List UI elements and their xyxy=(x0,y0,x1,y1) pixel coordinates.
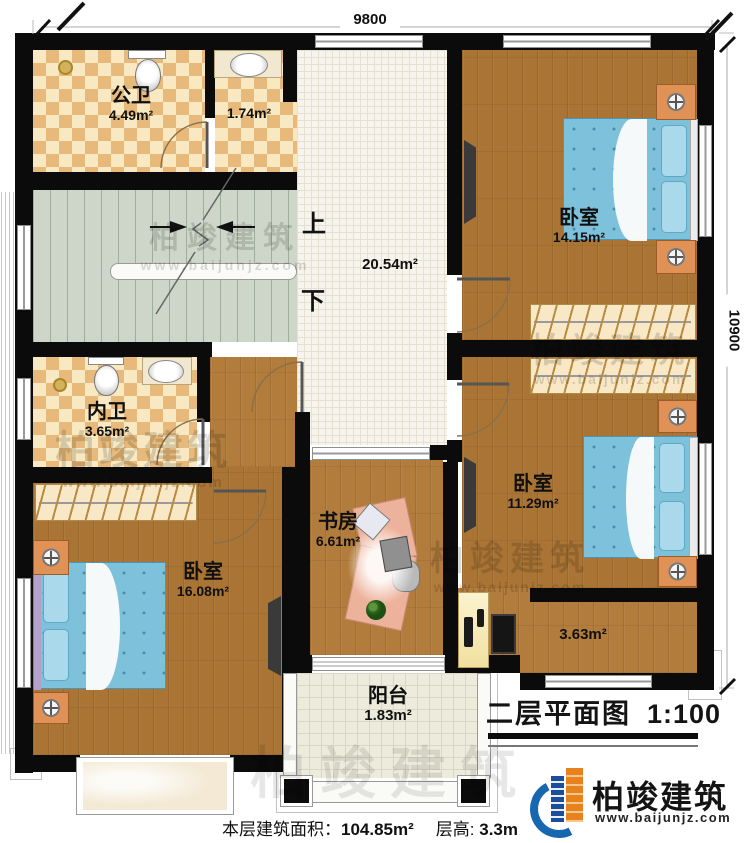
room-label-balcony: 阳台 1.83m² xyxy=(364,686,412,724)
room-name: 卧室 xyxy=(177,562,229,583)
stair-down-label: 下 xyxy=(301,281,325,316)
room-area: 4.49m² xyxy=(109,107,153,123)
room-label-bedroom-left: 卧室 16.08m² xyxy=(177,562,229,599)
room-area: 6.61m² xyxy=(316,533,360,549)
floor-height-value: 3.3m xyxy=(479,820,518,839)
room-area: 16.08m² xyxy=(177,583,229,599)
room-name: 书房 xyxy=(316,512,360,533)
plan-title-text: 二层平面图 xyxy=(486,699,631,729)
room-area: 14.15m² xyxy=(553,229,605,245)
room-name: 卧室 xyxy=(553,208,605,229)
room-name: 公卫 xyxy=(109,86,153,107)
title-underline-thick xyxy=(488,733,698,739)
room-area: 1.74m² xyxy=(227,105,271,121)
floor-plan-canvas: 柏竣建筑 www.baijunjz.com 柏竣建筑 www.baijunjz.… xyxy=(0,0,750,843)
floor-area-value: 104.85m² xyxy=(341,820,414,839)
room-name: 阳台 xyxy=(364,686,412,707)
room-name: 卧室 xyxy=(507,474,558,495)
room-area: 3.65m² xyxy=(85,423,129,439)
room-label-bedroom-top-right: 卧室 14.15m² xyxy=(553,208,605,245)
floor-area-label: 本层建筑面积： xyxy=(222,820,341,839)
room-area: 20.54m² xyxy=(362,256,418,273)
room-label-study: 书房 6.61m² xyxy=(316,512,360,549)
floor-stats: 本层建筑面积：104.85m²层高: 3.3m xyxy=(222,815,518,840)
room-area: 3.63m² xyxy=(559,626,607,643)
company-logo-icon xyxy=(534,766,590,828)
logo-building-blue-icon xyxy=(551,776,564,822)
room-label-private-bath: 内卫 3.65m² xyxy=(85,402,129,439)
company-website: www.baijunjz.com xyxy=(595,810,731,825)
door-arcs xyxy=(157,122,510,543)
dimension-right: 10900 xyxy=(726,295,743,367)
room-label-corridor: 3.63m² xyxy=(559,626,607,643)
stair-direction-marks xyxy=(150,168,255,314)
plan-title: 二层平面图1:100 xyxy=(486,692,721,731)
logo-building-orange-icon xyxy=(566,768,583,822)
plan-scale: 1:100 xyxy=(647,699,721,729)
room-area: 11.29m² xyxy=(507,495,558,511)
floor-height-label: 层高: xyxy=(436,820,475,839)
room-name: 内卫 xyxy=(85,402,129,423)
room-label-hall: 20.54m² xyxy=(362,256,418,273)
title-underline-thin xyxy=(488,745,698,747)
room-label-public-bath: 公卫 4.49m² xyxy=(109,86,153,123)
room-label-washroom: 1.74m² xyxy=(227,105,271,121)
room-label-bedroom-mid-right: 卧室 11.29m² xyxy=(507,474,558,511)
stair-up-label: 上 xyxy=(302,204,326,239)
dimension-top: 9800 xyxy=(340,11,400,28)
room-area: 1.83m² xyxy=(364,707,412,724)
